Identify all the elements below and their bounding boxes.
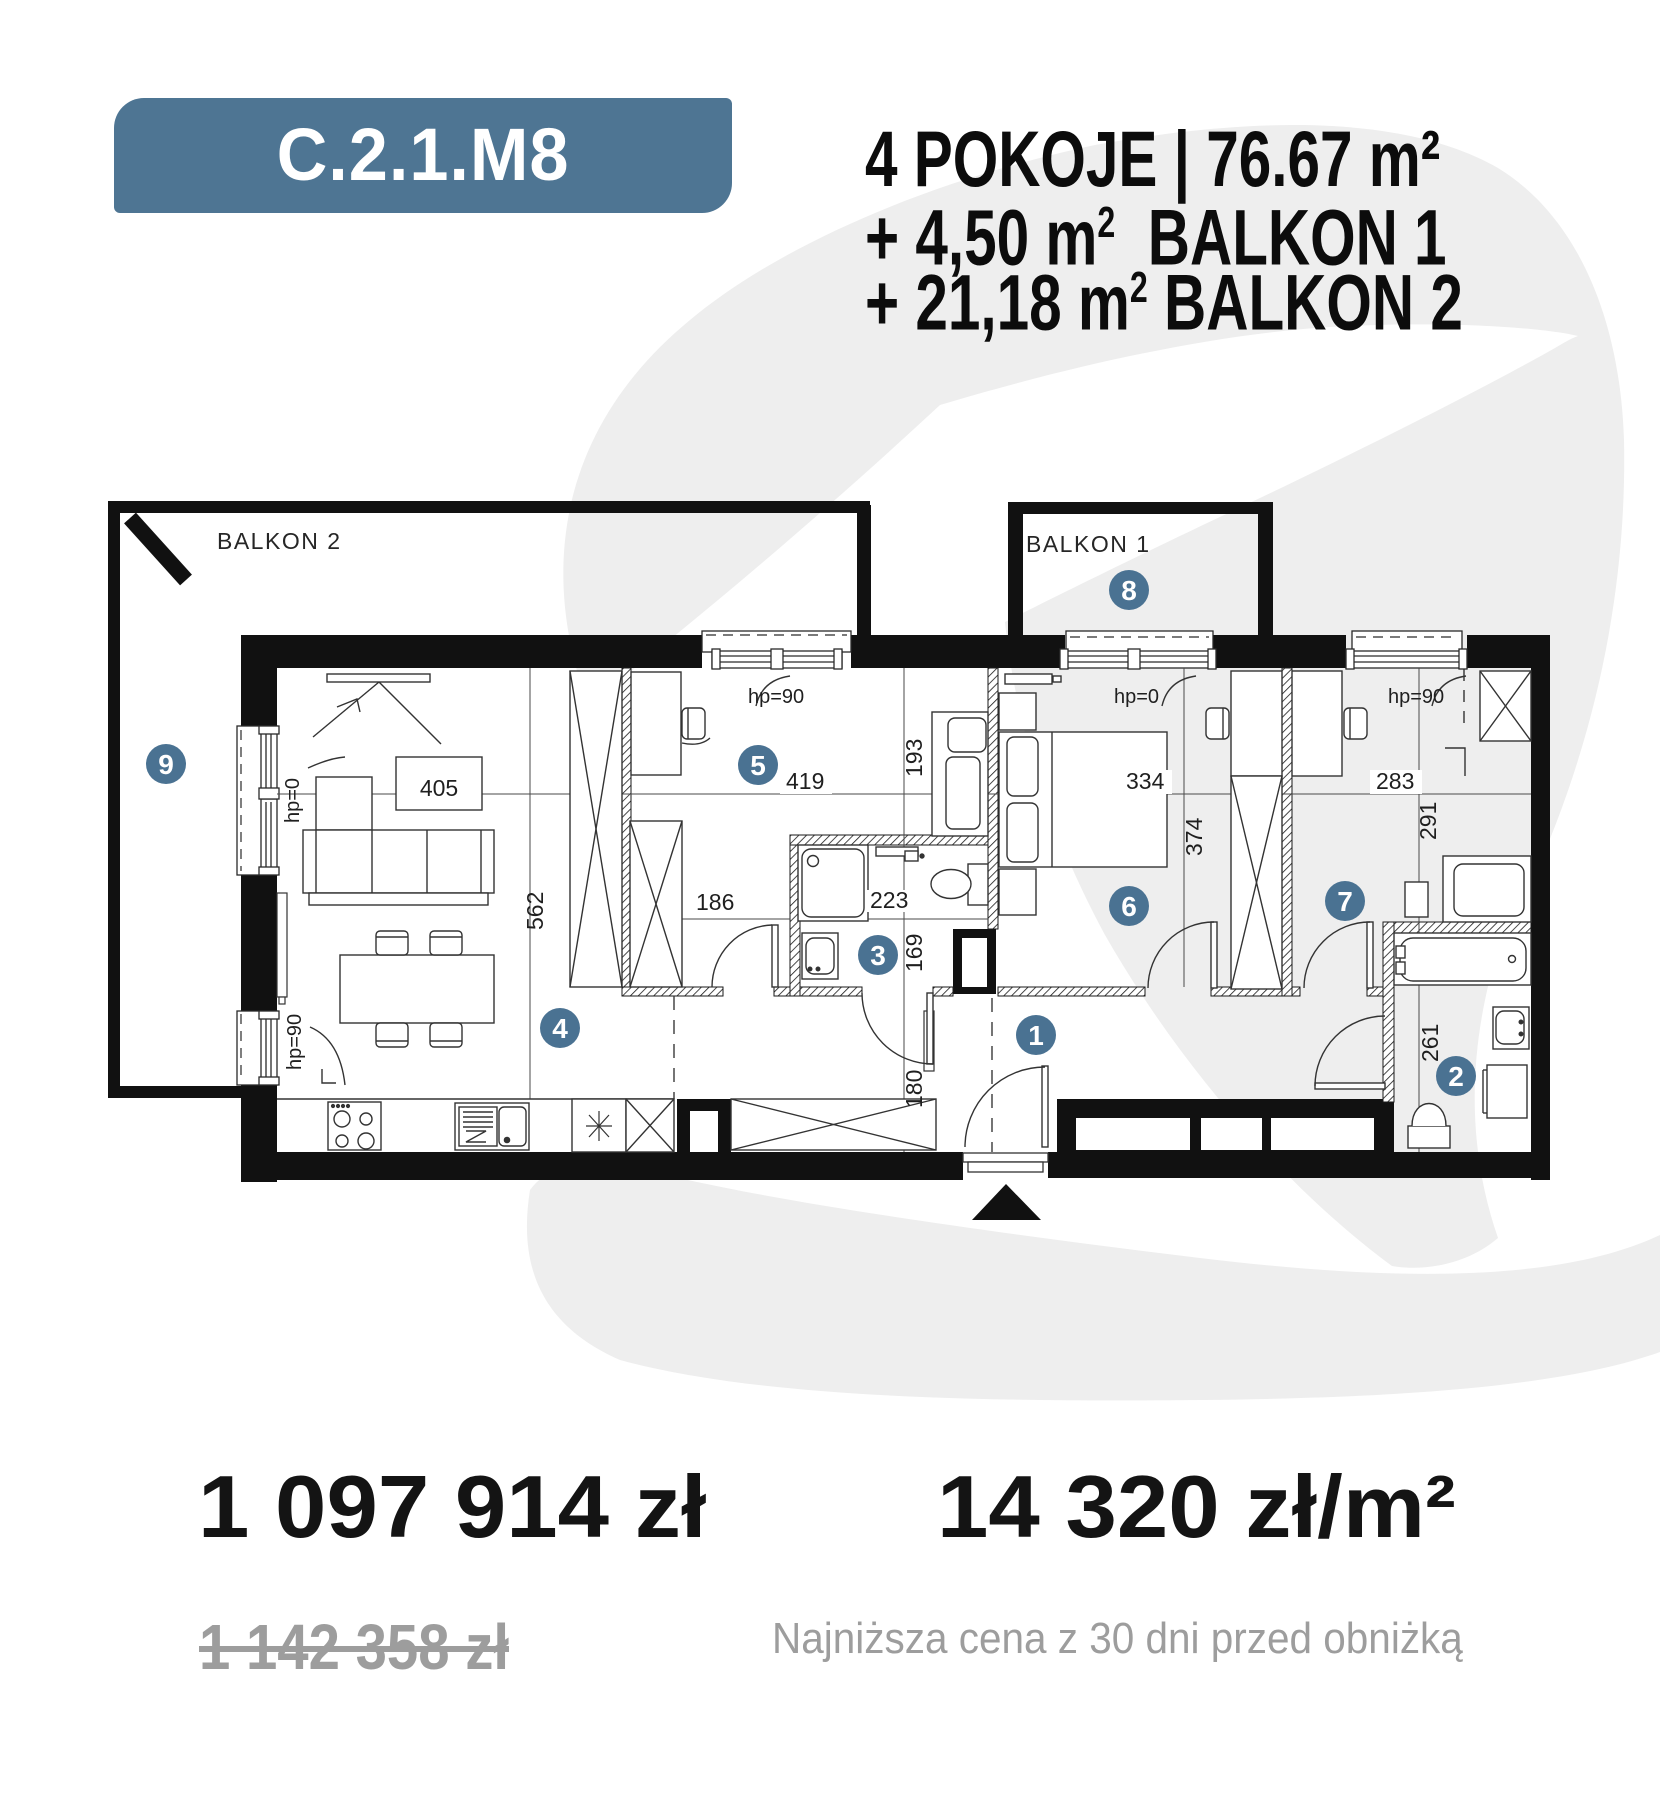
svg-text:hp=90: hp=90 — [748, 686, 804, 708]
svg-text:562: 562 — [522, 892, 548, 930]
svg-text:5: 5 — [750, 750, 766, 781]
svg-text:6: 6 — [1121, 891, 1137, 922]
svg-text:283: 283 — [1376, 768, 1414, 794]
svg-text:169: 169 — [901, 934, 927, 972]
svg-text:374: 374 — [1181, 817, 1207, 856]
svg-text:334: 334 — [1126, 768, 1165, 794]
svg-text:291: 291 — [1415, 802, 1441, 840]
svg-text:BALKON 2: BALKON 2 — [217, 528, 342, 554]
svg-text:hp=0: hp=0 — [282, 778, 304, 823]
svg-text:223: 223 — [870, 887, 908, 913]
svg-text:261: 261 — [1417, 1024, 1443, 1062]
svg-text:hp=90: hp=90 — [1388, 686, 1444, 708]
svg-text:2: 2 — [1448, 1061, 1464, 1092]
svg-text:BALKON 1: BALKON 1 — [1026, 531, 1151, 557]
svg-text:180: 180 — [901, 1070, 927, 1108]
svg-text:1: 1 — [1028, 1020, 1044, 1051]
svg-text:hp=0: hp=0 — [1114, 686, 1159, 708]
svg-text:hp=90: hp=90 — [284, 1014, 306, 1070]
svg-text:9: 9 — [158, 749, 174, 780]
svg-text:4: 4 — [552, 1013, 568, 1044]
svg-text:186: 186 — [696, 889, 734, 915]
svg-text:405: 405 — [420, 775, 458, 801]
svg-text:193: 193 — [901, 739, 927, 777]
svg-text:419: 419 — [786, 768, 824, 794]
svg-text:3: 3 — [870, 940, 886, 971]
svg-text:8: 8 — [1121, 575, 1137, 606]
svg-text:7: 7 — [1337, 886, 1353, 917]
